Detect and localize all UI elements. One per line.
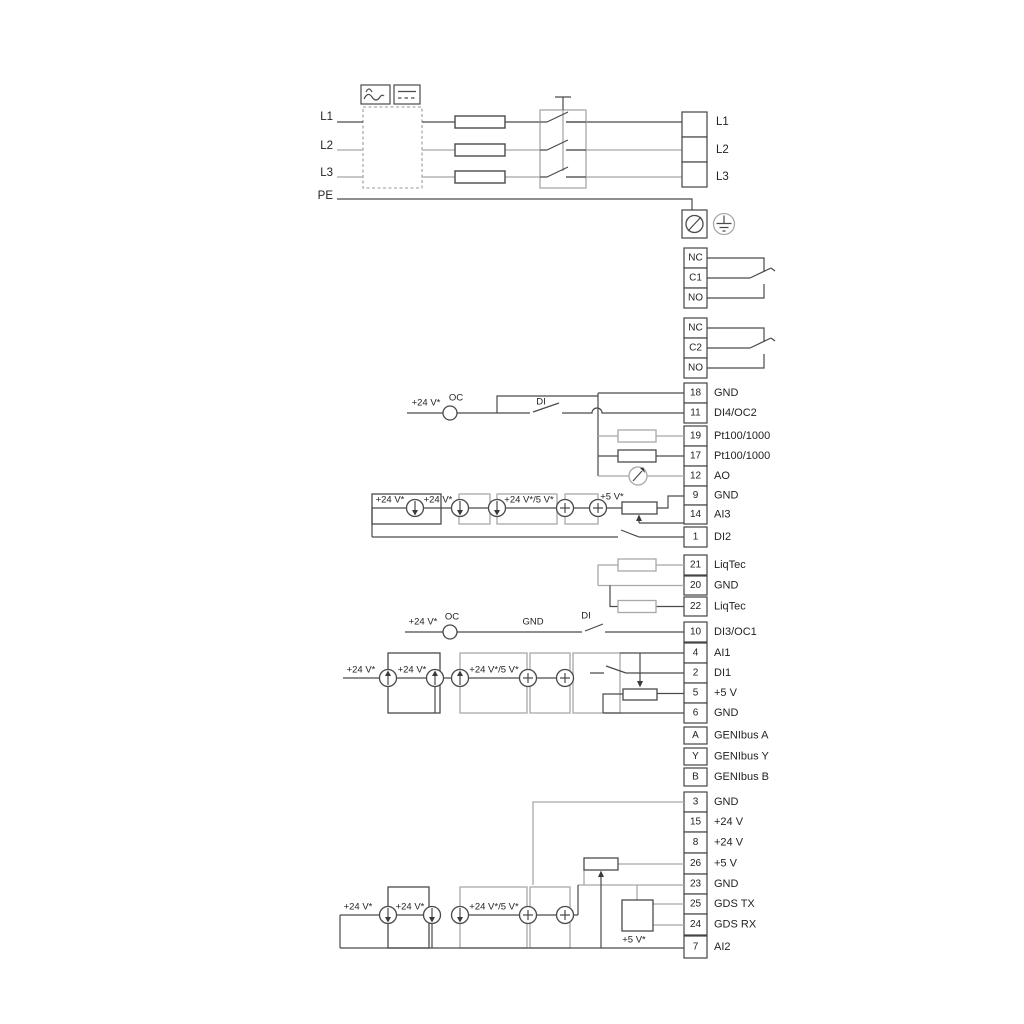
- resistor-icon: [618, 450, 656, 462]
- terminal-25: 25: [690, 899, 702, 910]
- terminal-15: 15: [690, 817, 702, 828]
- relay1-no: NO: [688, 293, 703, 304]
- annotation-plus5: +5 V*: [622, 935, 646, 946]
- terminal-9-label: GND: [714, 490, 739, 502]
- terminal-22-label: LiqTec: [714, 601, 746, 613]
- terminal-22: 22: [690, 601, 702, 612]
- terminal-2: 2: [693, 668, 699, 679]
- terminal-21: 21: [690, 560, 702, 571]
- terminal-26-label: +5 V: [714, 858, 738, 870]
- annotation-plus24: +24 V*: [347, 665, 376, 676]
- terminal-2-label: DI1: [714, 667, 731, 679]
- voltage-source-icon: [557, 907, 574, 924]
- voltage-source-icon: [520, 670, 537, 687]
- terminal-9: 9: [693, 490, 699, 501]
- gauge-icon: [629, 467, 647, 485]
- current-sink-icon: [452, 500, 469, 517]
- terminal-23: 23: [690, 879, 702, 890]
- earth-ground-icon: [714, 214, 735, 235]
- input-label-pe: PE: [318, 190, 334, 202]
- terminal-20: 20: [690, 580, 702, 591]
- output-label-l3: L3: [716, 171, 729, 183]
- voltage-source-icon: [557, 670, 574, 687]
- terminal-26: 26: [690, 858, 702, 869]
- terminal-5-label: +5 V: [714, 687, 738, 699]
- input-label-l1: L1: [320, 111, 333, 123]
- annotation-plus5: +5 V*: [600, 492, 624, 503]
- terminal-1: 1: [693, 532, 699, 543]
- terminal-7: 7: [693, 942, 699, 953]
- terminal-6-label: GND: [714, 707, 739, 719]
- terminal-23-label: GND: [714, 878, 739, 890]
- terminal-7-label: AI2: [714, 941, 731, 953]
- annotation-plus24: +24 V*: [424, 495, 453, 506]
- output-label-l1: L1: [716, 116, 729, 128]
- current-sink-icon: [424, 907, 441, 924]
- terminal-18: 18: [690, 388, 702, 399]
- terminal-8-label: +24 V: [714, 837, 744, 849]
- terminal-17-label: Pt100/1000: [714, 450, 770, 462]
- wiring-diagram: L1 L2 L3 PE L1 L2 L3 NC C1 NO NC C2: [0, 0, 1024, 1024]
- terminal-15-label: +24 V: [714, 816, 744, 828]
- current-sink-icon: [380, 907, 397, 924]
- annotation-gnd: GND: [522, 617, 543, 628]
- terminal-25-label: GDS TX: [714, 898, 755, 910]
- terminal-b-label: GENIbus B: [714, 771, 769, 783]
- terminal-4: 4: [693, 648, 699, 659]
- terminal-11: 11: [690, 408, 701, 419]
- potentiometer-icon: [622, 502, 657, 514]
- terminal-10-label: DI3/OC1: [714, 626, 757, 638]
- resistor-icon: [618, 430, 656, 442]
- relay2-c2: C2: [689, 343, 702, 354]
- annotation-plus24: +24 V*: [398, 665, 427, 676]
- annotation-plus24: +24 V*: [396, 902, 425, 913]
- annotation-plus24-5: +24 V*/5 V*: [469, 665, 519, 676]
- terminal-18-label: GND: [714, 387, 739, 399]
- gds-sensor-box: [622, 900, 653, 931]
- output-label-l2: L2: [716, 144, 729, 156]
- potentiometer-icon: [584, 858, 618, 870]
- current-source-icon: [380, 670, 397, 687]
- relay1-nc: NC: [688, 253, 702, 264]
- resistor-icon: [618, 601, 656, 613]
- terminal-1-label: DI2: [714, 531, 731, 543]
- terminal-10: 10: [690, 627, 702, 638]
- voltage-source-icon: [520, 907, 537, 924]
- oc-circle: [443, 625, 457, 639]
- terminal-21-label: LiqTec: [714, 559, 746, 571]
- option-group-box: [460, 653, 527, 713]
- terminal-19-label: Pt100/1000: [714, 430, 770, 442]
- terminal-5: 5: [693, 688, 699, 699]
- current-sink-icon: [407, 500, 424, 517]
- terminal-8: 8: [693, 837, 699, 848]
- potentiometer-icon: [623, 689, 657, 700]
- terminal-y: Y: [692, 751, 699, 762]
- terminal-4-label: AI1: [714, 647, 731, 659]
- relay2-nc: NC: [688, 323, 702, 334]
- option-group-box: [573, 653, 620, 713]
- terminal-12: 12: [690, 471, 702, 482]
- annotation-plus24-5: +24 V*/5 V*: [469, 902, 519, 913]
- terminal-12-label: AO: [714, 470, 730, 482]
- current-source-icon: [452, 670, 469, 687]
- terminal-14: 14: [690, 509, 702, 520]
- current-sink-icon: [489, 500, 506, 517]
- power-terminal-block: [682, 112, 707, 187]
- relay1-c1: C1: [689, 273, 702, 284]
- annotation-di: DI: [581, 611, 591, 622]
- annotation-plus24: +24 V*: [376, 495, 405, 506]
- input-label-l2: L2: [320, 140, 333, 152]
- terminal-3: 3: [693, 797, 699, 808]
- terminal-a-label: GENIbus A: [714, 730, 769, 742]
- input-label-l3: L3: [320, 167, 333, 179]
- terminal-b: B: [692, 772, 699, 783]
- voltage-source-icon: [557, 500, 574, 517]
- annotation-plus24-5: +24 V*/5 V*: [504, 495, 554, 506]
- terminal-a: A: [692, 730, 699, 741]
- current-source-icon: [427, 670, 444, 687]
- terminal-3-label: GND: [714, 796, 739, 808]
- current-sink-icon: [452, 907, 469, 924]
- terminal-20-label: GND: [714, 580, 739, 592]
- oc-circle: [443, 406, 457, 420]
- annotation-oc: OC: [449, 393, 463, 404]
- option-group-box: [460, 887, 527, 948]
- annotation-oc: OC: [445, 612, 459, 623]
- annotation-plus24: +24 V*: [344, 902, 373, 913]
- annotation-plus24: +24 V*: [412, 398, 441, 409]
- resistor-icon: [618, 559, 656, 571]
- terminal-17: 17: [690, 451, 702, 462]
- terminal-11-label: DI4/OC2: [714, 407, 757, 419]
- terminal-19: 19: [690, 431, 702, 442]
- terminal-14-label: AI3: [714, 509, 731, 521]
- annotation-plus24: +24 V*: [409, 617, 438, 628]
- terminal-y-label: GENIbus Y: [714, 751, 769, 763]
- cable-screw-icon: [682, 210, 707, 238]
- terminal-6: 6: [693, 708, 699, 719]
- terminal-24: 24: [690, 919, 702, 930]
- relay2-no: NO: [688, 363, 703, 374]
- annotation-di: DI: [536, 397, 546, 408]
- terminal-24-label: GDS RX: [714, 919, 757, 931]
